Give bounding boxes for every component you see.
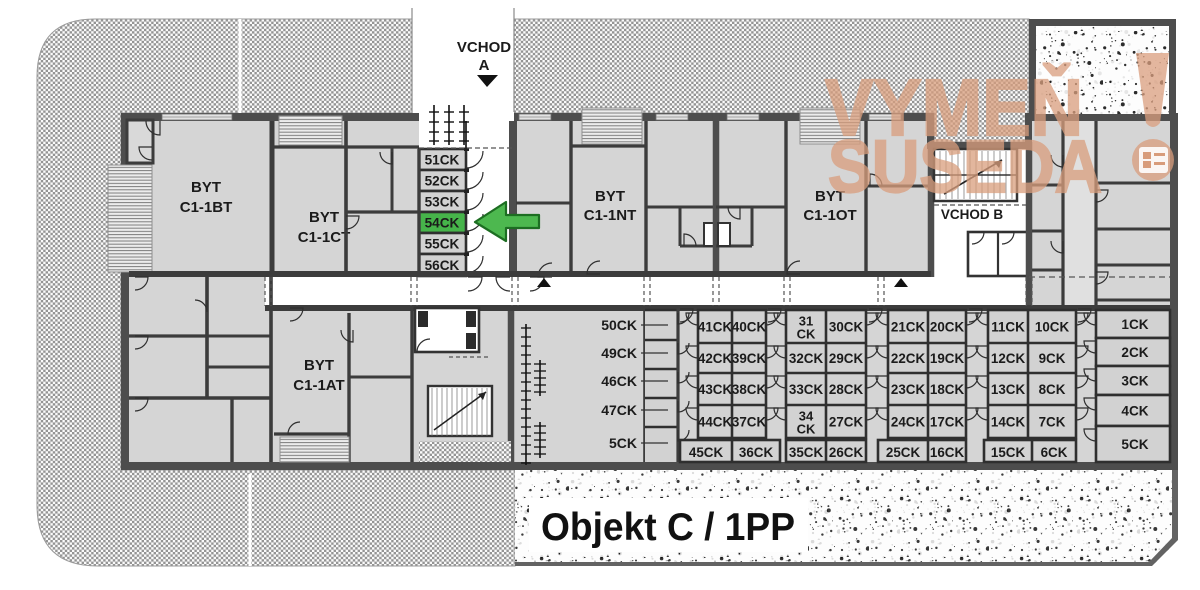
svg-text:25CK: 25CK xyxy=(886,445,921,460)
svg-text:32CK: 32CK xyxy=(789,351,824,366)
svg-text:12CK: 12CK xyxy=(991,351,1026,366)
svg-text:45CK: 45CK xyxy=(689,445,724,460)
svg-text:19CK: 19CK xyxy=(930,351,965,366)
svg-text:28CK: 28CK xyxy=(829,382,864,397)
svg-text:2CK: 2CK xyxy=(1121,345,1148,360)
svg-text:C1-1BT: C1-1BT xyxy=(180,199,233,216)
svg-text:14CK: 14CK xyxy=(991,415,1026,430)
svg-text:VCHOD B: VCHOD B xyxy=(941,207,1004,222)
svg-text:36CK: 36CK xyxy=(739,445,774,460)
svg-text:CK: CK xyxy=(797,327,816,342)
svg-text:C1-1CT: C1-1CT xyxy=(298,229,351,246)
svg-text:33CK: 33CK xyxy=(789,382,824,397)
svg-text:43CK: 43CK xyxy=(698,382,733,397)
svg-text:CK: CK xyxy=(797,422,816,437)
svg-text:10CK: 10CK xyxy=(1035,320,1070,335)
svg-text:53CK: 53CK xyxy=(425,195,460,210)
svg-text:7CK: 7CK xyxy=(1039,415,1066,430)
svg-text:BYT: BYT xyxy=(191,179,221,196)
svg-text:51CK: 51CK xyxy=(425,153,460,168)
svg-text:41CK: 41CK xyxy=(698,320,733,335)
svg-text:29CK: 29CK xyxy=(829,351,864,366)
svg-text:18CK: 18CK xyxy=(930,382,965,397)
svg-text:37CK: 37CK xyxy=(732,415,767,430)
svg-text:BYT: BYT xyxy=(595,188,625,205)
svg-text:1CK: 1CK xyxy=(1121,317,1148,332)
svg-text:13CK: 13CK xyxy=(991,382,1026,397)
svg-text:44CK: 44CK xyxy=(698,415,733,430)
svg-text:C1-1NT: C1-1NT xyxy=(584,207,637,224)
svg-text:SUSEDA: SUSEDA xyxy=(828,125,1102,208)
svg-text:9CK: 9CK xyxy=(1039,351,1066,366)
svg-text:4CK: 4CK xyxy=(1121,404,1148,419)
svg-text:24CK: 24CK xyxy=(891,415,926,430)
svg-text:27CK: 27CK xyxy=(829,415,864,430)
svg-text:35CK: 35CK xyxy=(789,445,824,460)
svg-text:15CK: 15CK xyxy=(991,445,1026,460)
svg-text:56CK: 56CK xyxy=(425,258,460,273)
svg-text:BYT: BYT xyxy=(309,209,339,226)
svg-text:52CK: 52CK xyxy=(425,174,460,189)
svg-text:17CK: 17CK xyxy=(930,415,965,430)
svg-text:BYT: BYT xyxy=(304,357,334,374)
svg-text:46CK: 46CK xyxy=(601,373,637,389)
svg-text:22CK: 22CK xyxy=(891,351,926,366)
svg-text:38CK: 38CK xyxy=(732,382,767,397)
svg-text:16CK: 16CK xyxy=(930,445,965,460)
svg-text:55CK: 55CK xyxy=(425,237,460,252)
svg-text:3CK: 3CK xyxy=(1121,374,1148,389)
svg-text:42CK: 42CK xyxy=(698,351,733,366)
svg-text:40CK: 40CK xyxy=(732,320,767,335)
svg-text:50CK: 50CK xyxy=(601,317,637,333)
svg-text:5CK: 5CK xyxy=(1121,437,1148,452)
svg-text:8CK: 8CK xyxy=(1039,382,1066,397)
svg-text:5CK: 5CK xyxy=(609,435,637,451)
svg-text:26CK: 26CK xyxy=(829,445,864,460)
svg-text:C1-1AT: C1-1AT xyxy=(293,377,344,394)
svg-text:6CK: 6CK xyxy=(1041,445,1068,460)
svg-text:23CK: 23CK xyxy=(891,382,926,397)
svg-text:54CK: 54CK xyxy=(425,216,460,231)
svg-text:C1-1OT: C1-1OT xyxy=(803,207,856,224)
svg-text:20CK: 20CK xyxy=(930,320,965,335)
svg-text:A: A xyxy=(479,57,490,74)
svg-text:11CK: 11CK xyxy=(991,320,1025,335)
svg-text:VCHOD: VCHOD xyxy=(457,39,511,56)
svg-text:39CK: 39CK xyxy=(732,351,767,366)
svg-text:21CK: 21CK xyxy=(891,320,926,335)
svg-text:47CK: 47CK xyxy=(601,402,637,418)
svg-text:49CK: 49CK xyxy=(601,345,637,361)
svg-text:Objekt C / 1PP: Objekt C / 1PP xyxy=(541,506,795,549)
svg-text:30CK: 30CK xyxy=(829,320,864,335)
